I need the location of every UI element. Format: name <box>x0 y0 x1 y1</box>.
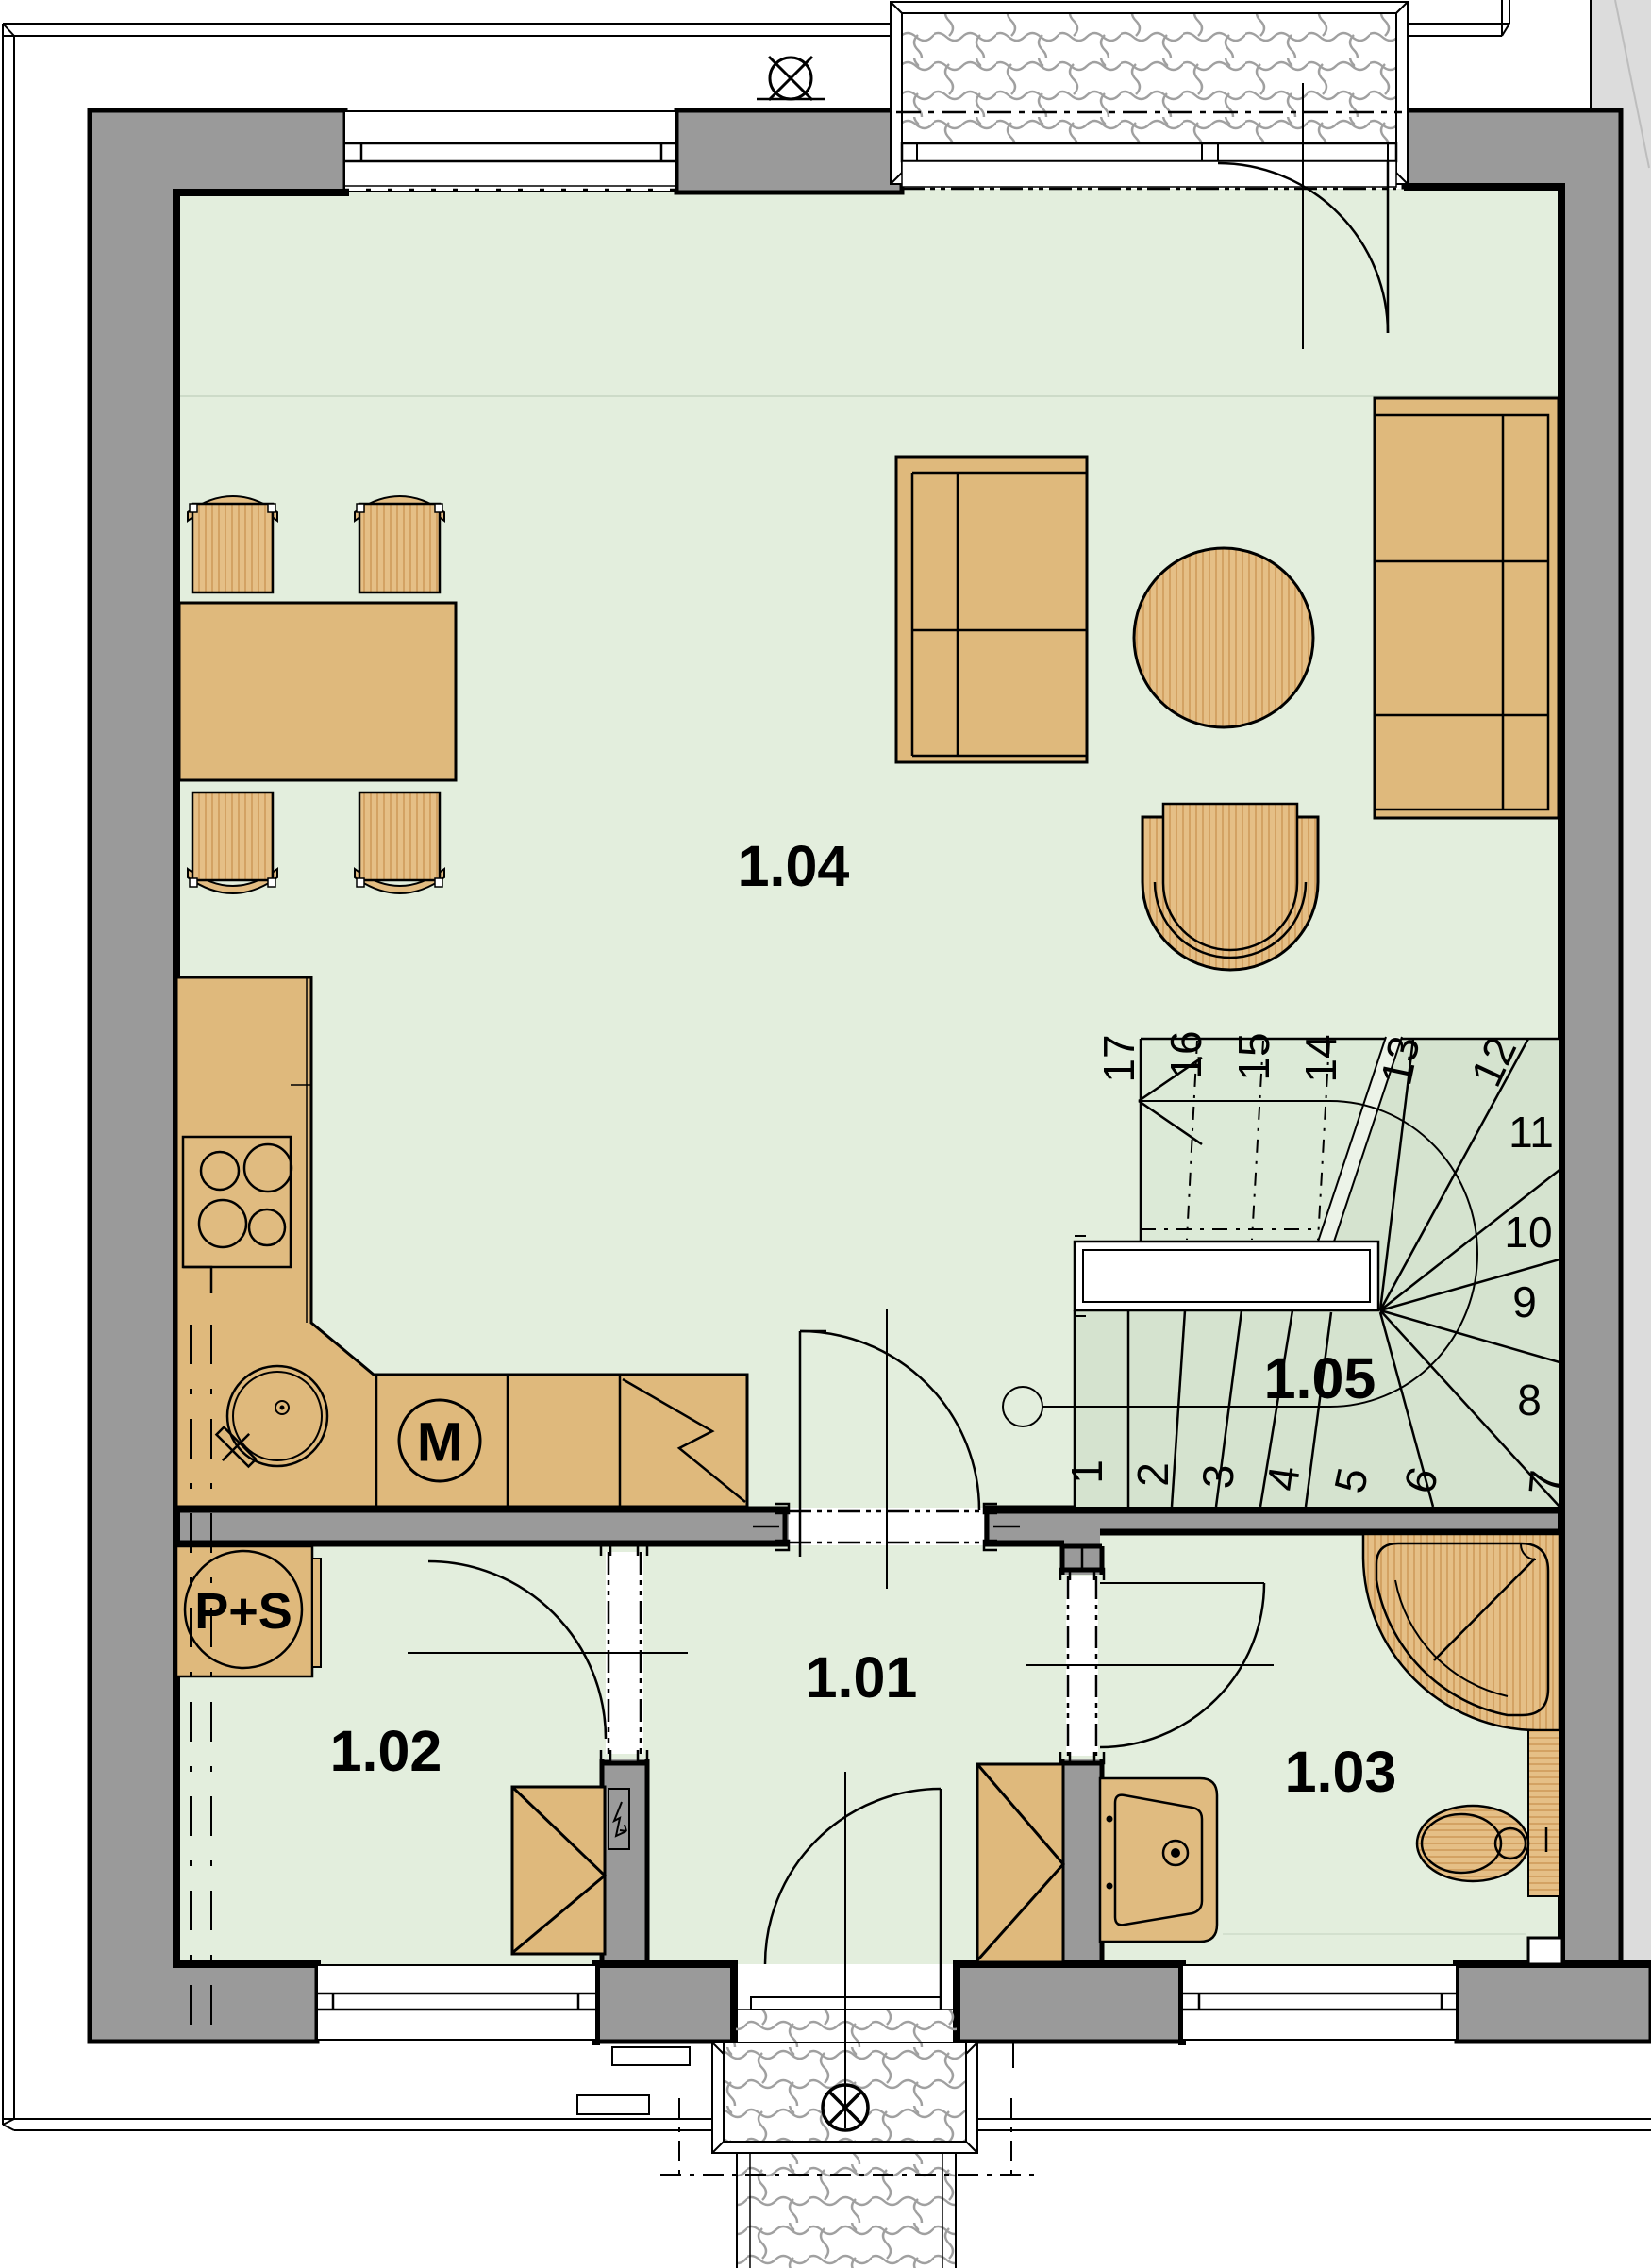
svg-text:15: 15 <box>1229 1032 1278 1080</box>
svg-text:3: 3 <box>1192 1462 1243 1490</box>
svg-text:1.03: 1.03 <box>1285 1740 1397 1804</box>
svg-text:9: 9 <box>1512 1277 1537 1326</box>
svg-text:1.01: 1.01 <box>806 1645 918 1709</box>
svg-text:7: 7 <box>1519 1468 1570 1496</box>
svg-text:2: 2 <box>1128 1462 1177 1487</box>
svg-text:17: 17 <box>1094 1034 1143 1082</box>
svg-text:13: 13 <box>1371 1032 1429 1090</box>
svg-text:M: M <box>417 1412 462 1474</box>
svg-text:1: 1 <box>1062 1459 1111 1484</box>
svg-text:10: 10 <box>1504 1208 1552 1257</box>
svg-text:P+S: P+S <box>194 1583 292 1640</box>
svg-text:11: 11 <box>1509 1108 1554 1157</box>
svg-text:1.05: 1.05 <box>1264 1346 1376 1410</box>
svg-text:8: 8 <box>1517 1376 1542 1425</box>
svg-text:1.04: 1.04 <box>738 834 850 898</box>
svg-text:1.02: 1.02 <box>330 1719 442 1783</box>
svg-text:16: 16 <box>1161 1030 1210 1078</box>
svg-text:14: 14 <box>1296 1034 1345 1082</box>
